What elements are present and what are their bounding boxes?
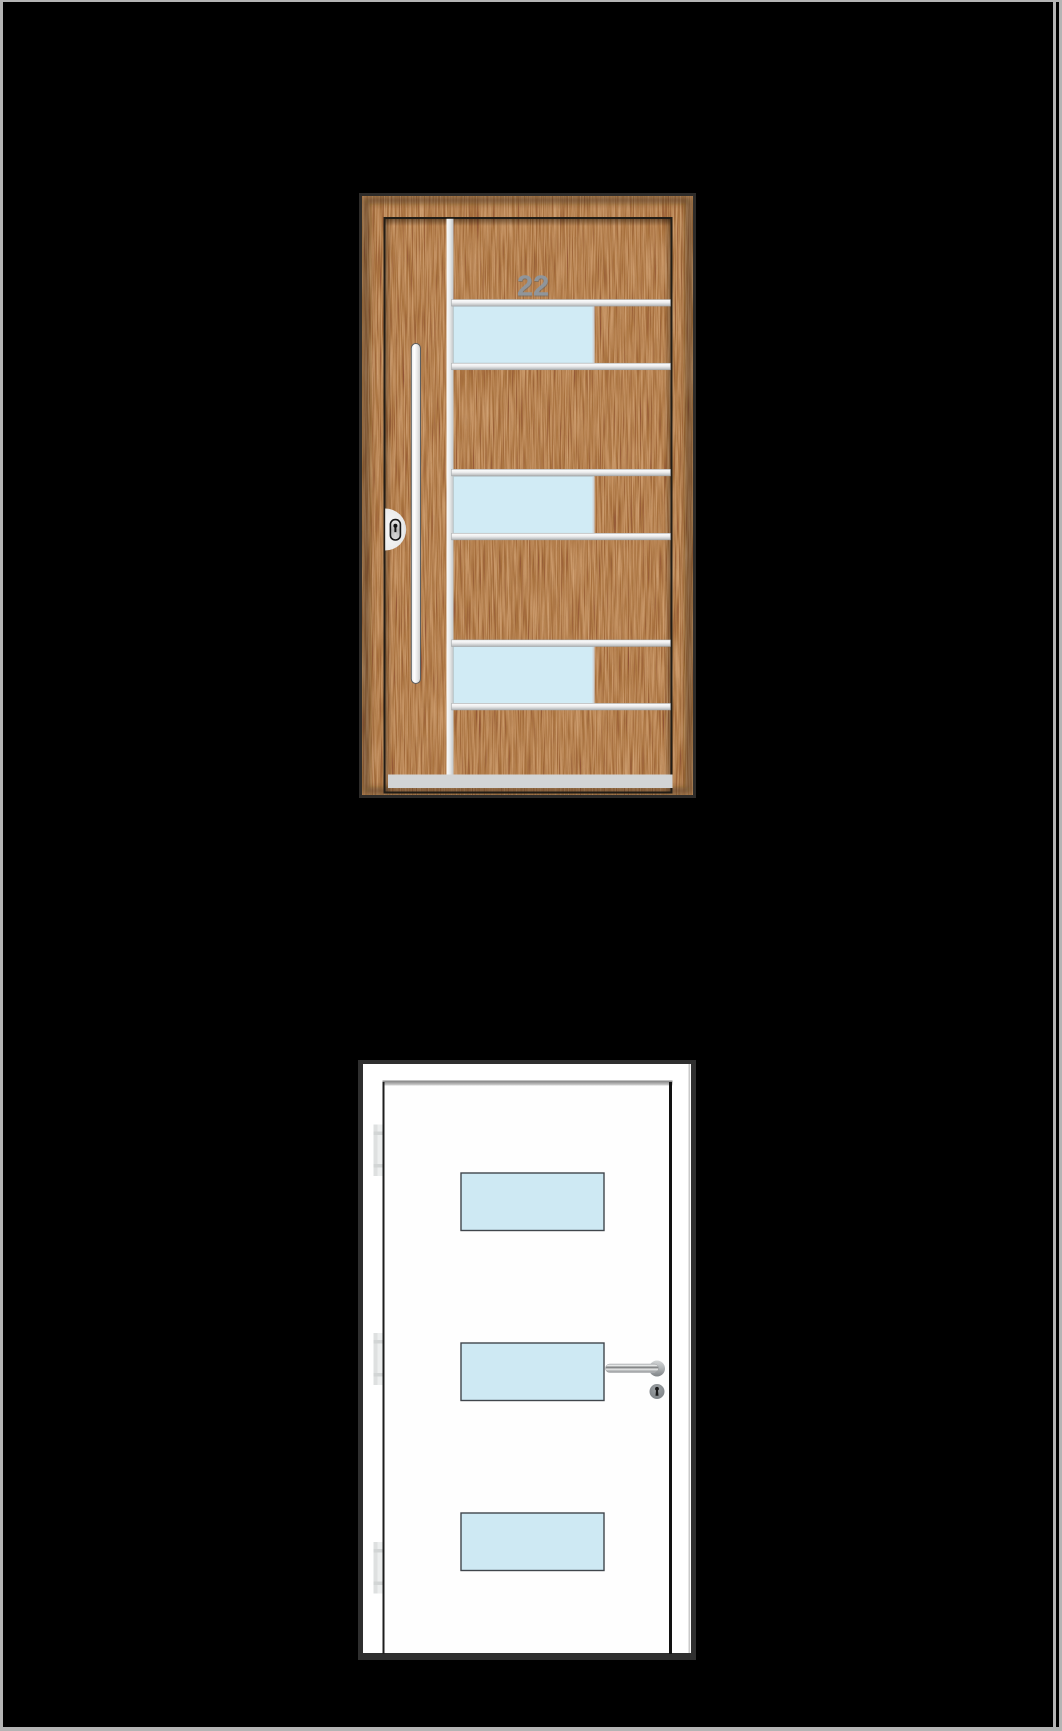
svg-text:22: 22 xyxy=(517,271,549,303)
